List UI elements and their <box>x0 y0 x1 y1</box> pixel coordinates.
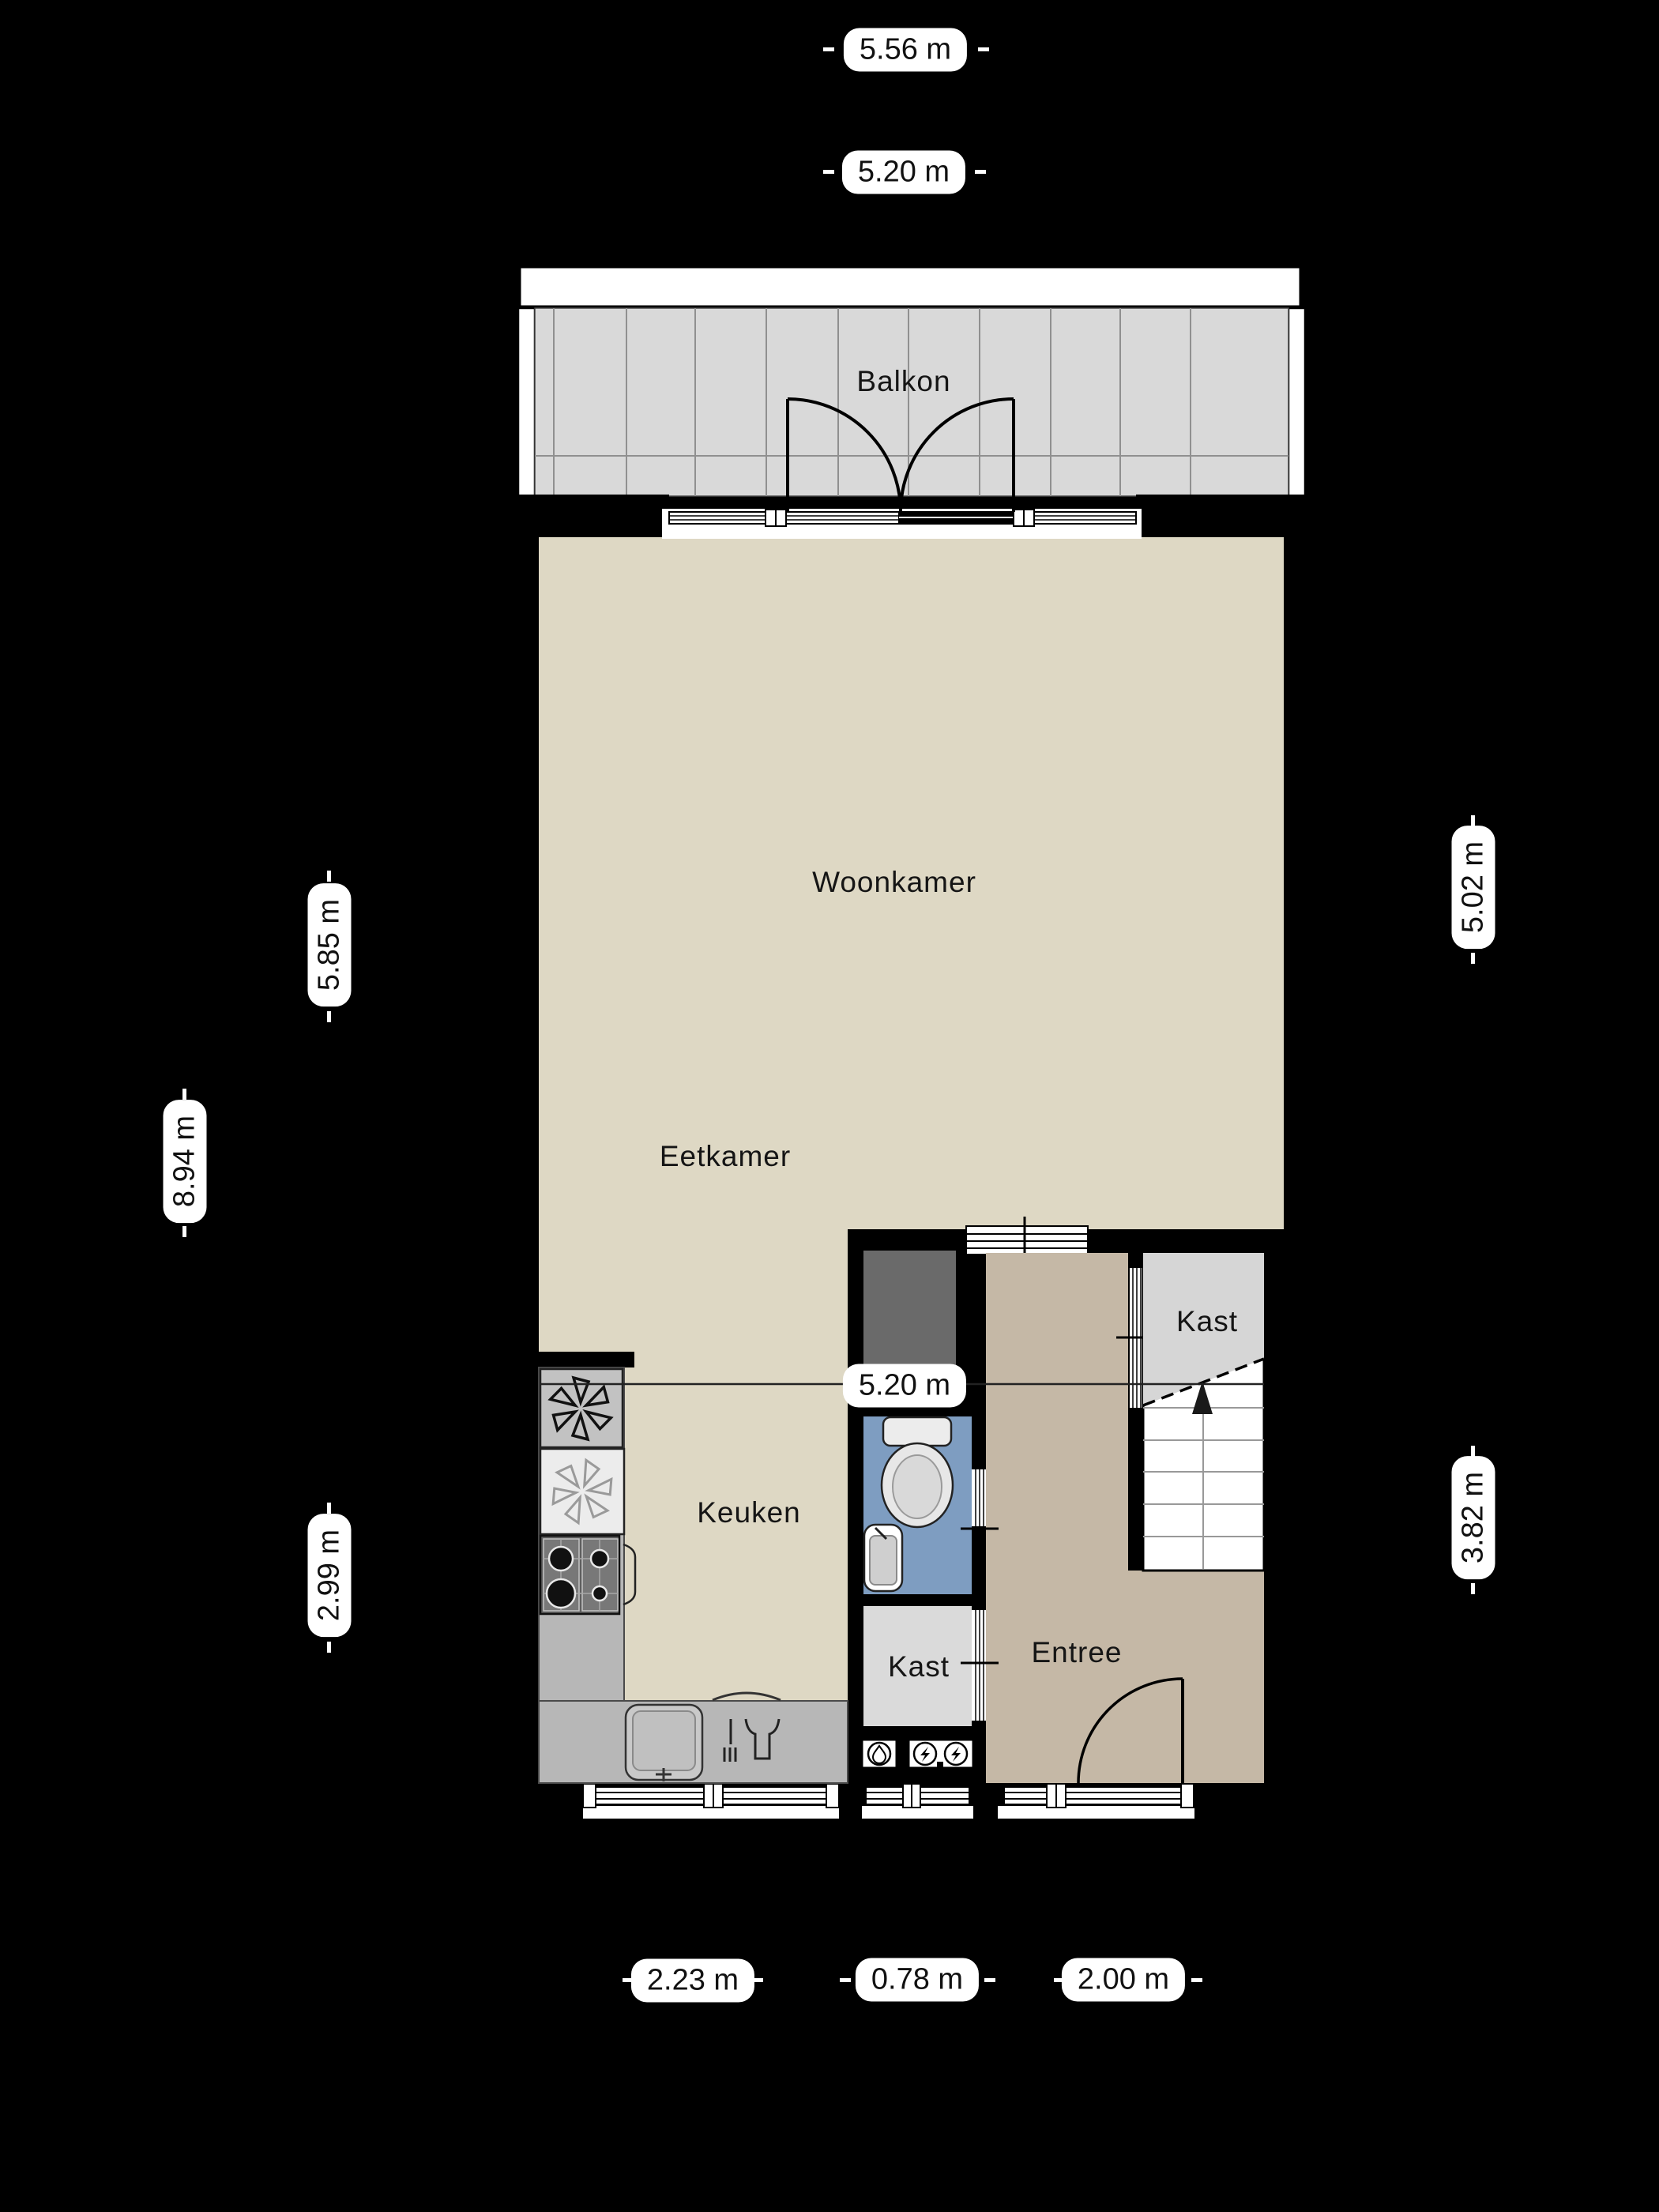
sink-icon <box>626 1705 702 1781</box>
room-label-kitchen: Keuken <box>697 1496 801 1529</box>
east-wall-upper <box>1282 495 1307 1252</box>
balcony-left-side <box>518 308 535 496</box>
west-wall <box>513 495 539 1809</box>
east-wall-lower <box>1264 1252 1307 1809</box>
south-windows <box>583 1784 1194 1819</box>
dimension-bottom-entry: 2.00 m <box>1062 1958 1185 2002</box>
north-window-right <box>1034 512 1136 524</box>
dimension-right-living: 5.02 m <box>1452 826 1495 949</box>
north-wall-right <box>1136 495 1307 539</box>
water-meter-icon <box>862 1740 897 1768</box>
floorplan-drawing <box>0 0 1659 2212</box>
room-label-living: Woonkamer <box>812 866 976 899</box>
hand-basin-icon <box>864 1525 902 1591</box>
kitchen-window <box>723 1787 826 1804</box>
bathroom-window <box>920 1787 969 1804</box>
front-door-threshold <box>1066 1787 1181 1804</box>
dimension-left-total: 8.94 m <box>164 1100 207 1223</box>
room-label-dining: Eetkamer <box>660 1140 791 1173</box>
room-label-closet-top: Kast <box>1176 1305 1238 1338</box>
bathroom-window <box>866 1787 903 1804</box>
dryer-icon <box>540 1449 624 1534</box>
electric-meter-icon <box>908 1740 973 1768</box>
dimension-bottom-bathroom: 0.78 m <box>856 1958 979 2002</box>
staircase <box>1143 1253 1264 1571</box>
dimension-top-outer: 5.56 m <box>844 28 967 72</box>
toilet-icon <box>882 1417 953 1527</box>
entry-window <box>1004 1787 1047 1804</box>
washing-machine-icon <box>540 1369 623 1447</box>
dimension-left-kitchen: 2.99 m <box>308 1514 352 1637</box>
kitchen-window <box>596 1787 704 1804</box>
balcony-outer-wall <box>520 267 1300 307</box>
dimension-bottom-kitchen: 2.23 m <box>631 1959 754 2003</box>
dimension-top-inner: 5.20 m <box>842 151 965 194</box>
balcony-floor <box>535 308 1288 496</box>
balcony-right-side <box>1288 308 1305 496</box>
north-window-left <box>669 512 766 524</box>
dimension-left-living: 5.85 m <box>308 883 352 1006</box>
floorplan-page: Balkon Woonkamer Eetkamer Keuken Kast Ka… <box>0 0 1659 2212</box>
room-label-entry: Entree <box>1031 1636 1122 1669</box>
north-windows <box>662 509 1142 539</box>
room-label-closet-meter: Kast <box>888 1650 950 1683</box>
room-label-balcony: Balkon <box>856 365 950 398</box>
balcony-door-threshold-left <box>786 512 899 524</box>
duct-shaft <box>863 1251 956 1365</box>
dimension-right-lower: 3.82 m <box>1452 1456 1495 1579</box>
dimension-middle: 5.20 m <box>843 1364 966 1408</box>
